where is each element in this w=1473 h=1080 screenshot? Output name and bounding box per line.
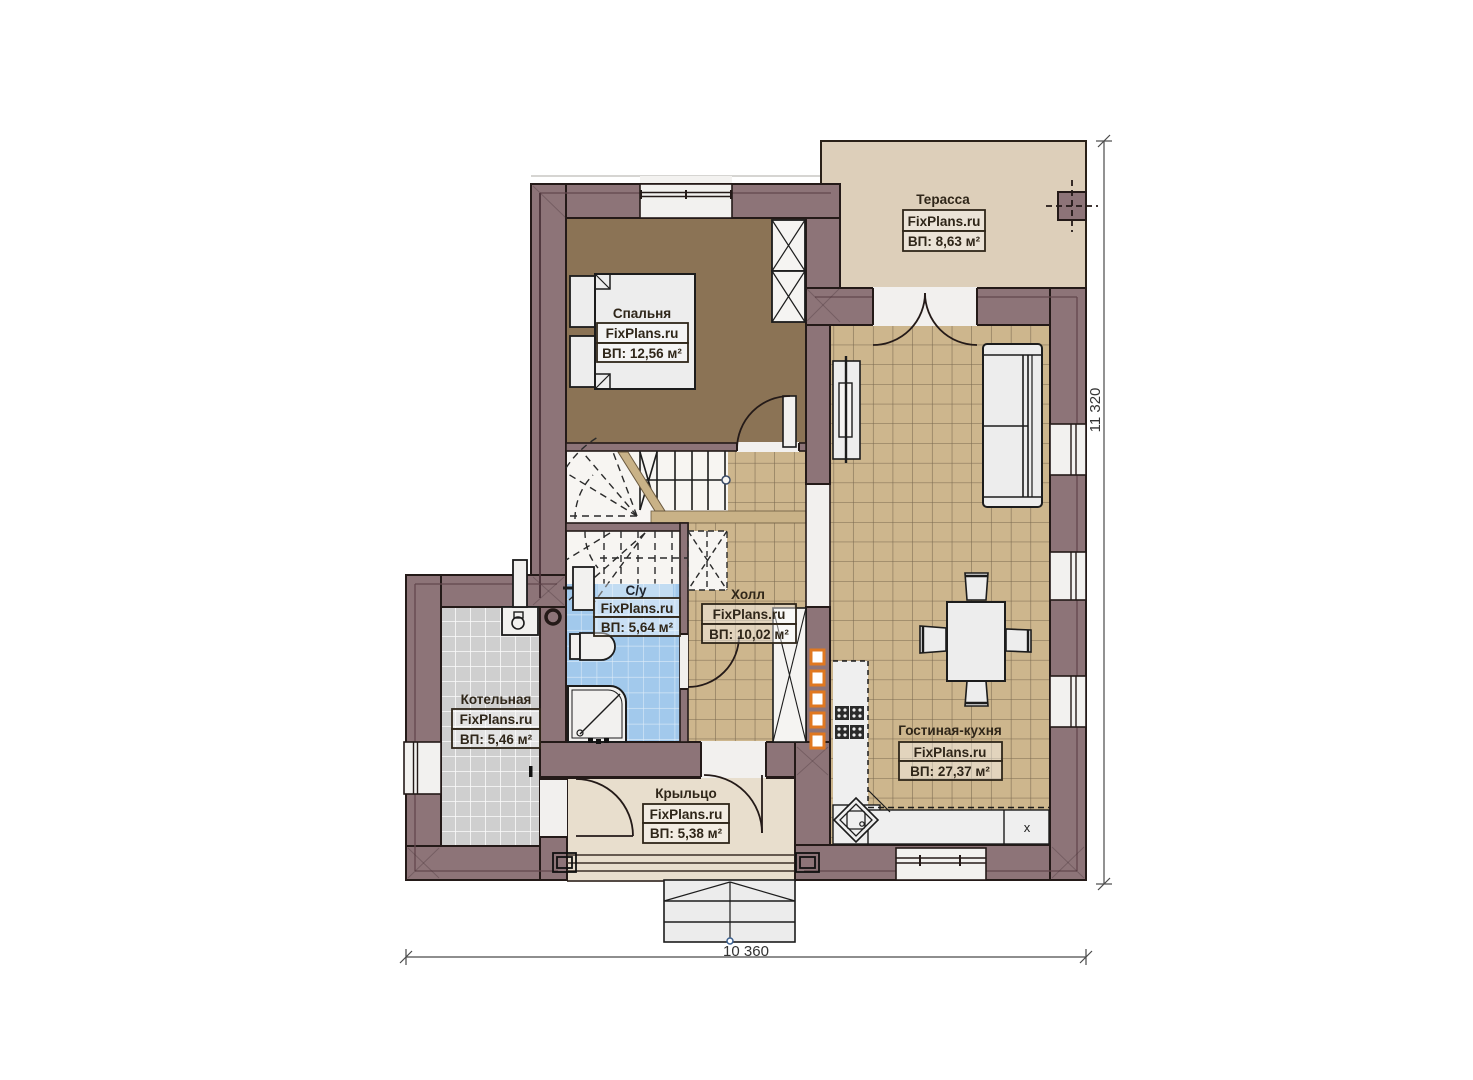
svg-text:FixPlans.ru: FixPlans.ru: [908, 214, 981, 229]
svg-text:ВП: 27,37 м²: ВП: 27,37 м²: [910, 764, 990, 779]
svg-text:Холл: Холл: [731, 587, 765, 602]
svg-text:ВП: 12,56 м²: ВП: 12,56 м²: [602, 346, 682, 361]
svg-text:FixPlans.ru: FixPlans.ru: [650, 807, 723, 822]
svg-text:FixPlans.ru: FixPlans.ru: [460, 712, 533, 727]
svg-text:Гостиная-кухня: Гостиная-кухня: [898, 723, 1001, 738]
svg-text:FixPlans.ru: FixPlans.ru: [601, 601, 674, 616]
svg-text:Котельная: Котельная: [461, 692, 532, 707]
svg-text:10 360: 10 360: [723, 943, 769, 960]
svg-text:x: x: [1024, 820, 1031, 835]
svg-text:ВП: 10,02 м²: ВП: 10,02 м²: [709, 627, 789, 642]
svg-text:FixPlans.ru: FixPlans.ru: [606, 326, 679, 341]
svg-text:Терасса: Терасса: [916, 192, 970, 207]
svg-text:ВП: 5,64 м²: ВП: 5,64 м²: [601, 620, 674, 635]
svg-text:ВП: 5,38 м²: ВП: 5,38 м²: [650, 826, 723, 841]
svg-text:С/у: С/у: [625, 583, 647, 598]
svg-text:Спальня: Спальня: [613, 306, 671, 321]
svg-text:ВП: 8,63 м²: ВП: 8,63 м²: [908, 234, 981, 249]
svg-text:FixPlans.ru: FixPlans.ru: [914, 745, 987, 760]
svg-text:ВП: 5,46 м²: ВП: 5,46 м²: [460, 732, 533, 747]
svg-text:FixPlans.ru: FixPlans.ru: [713, 607, 786, 622]
svg-text:11 320: 11 320: [1087, 388, 1104, 433]
svg-text:Крыльцо: Крыльцо: [655, 786, 716, 801]
